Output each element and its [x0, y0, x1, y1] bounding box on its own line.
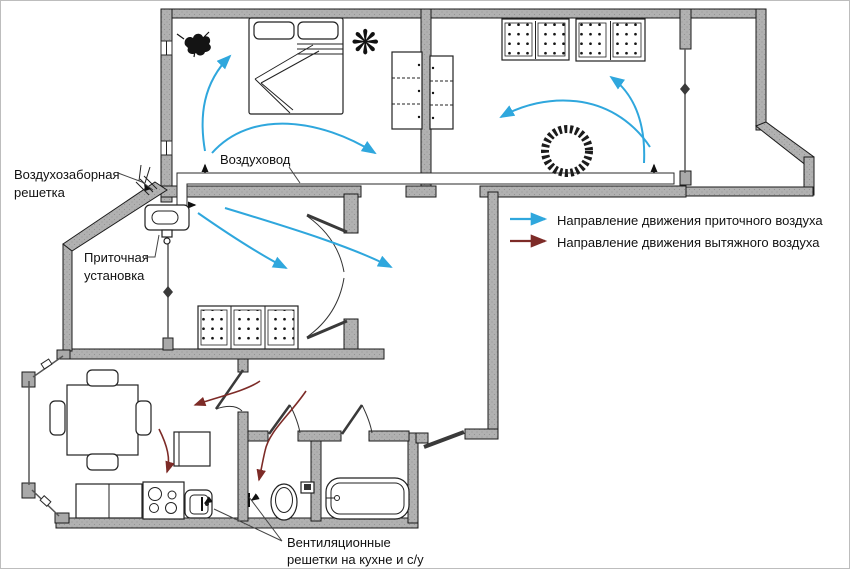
label-vent-grilles-line2: решетки на кухне и с/у — [287, 552, 424, 567]
label-air-duct: Воздуховод — [220, 152, 291, 167]
entrance-door-icon — [424, 432, 464, 447]
supply-arrow — [203, 56, 230, 151]
label-vent-grilles-line1: Вентиляционные — [287, 535, 391, 550]
bed — [249, 18, 343, 114]
supply-unit-icon — [145, 205, 189, 244]
label-air-intake-grille-line1: Воздухозаборная — [14, 167, 120, 182]
toilet — [271, 482, 314, 520]
legend-exhaust-label: Направление движения вытяжного воздуха — [557, 235, 820, 250]
kitchen-counter — [76, 484, 142, 518]
floor-plan-svg: ❋ — [1, 1, 850, 569]
bathroom-door-icon — [342, 405, 372, 434]
bathtub — [326, 478, 409, 519]
fridge — [174, 432, 210, 466]
legend: Направление движения приточного воздуха … — [510, 213, 823, 250]
label-supply-unit-line1: Приточная — [84, 250, 149, 265]
supply-arrow — [212, 124, 375, 153]
living-room-radiator — [198, 306, 298, 349]
kitchen-sink — [185, 490, 212, 518]
supply-arrow — [198, 213, 286, 268]
label-air-intake-grille-line2: решетка — [14, 185, 66, 200]
window-curtain-radiator-1 — [502, 19, 569, 60]
legend-supply-label: Направление движения приточного воздуха — [557, 213, 823, 228]
dark-plant-icon — [177, 32, 211, 57]
window-curtain-radiator-2 — [576, 19, 645, 61]
exhaust-arrow — [159, 429, 169, 472]
living-room-double-door-icon — [307, 215, 347, 338]
toilet-door-icon — [269, 405, 300, 434]
ventilation-floor-plan: ❋ — [0, 0, 850, 569]
loggia-window-icon — [680, 49, 690, 173]
living-room-window-icon — [163, 244, 173, 338]
dining-table — [50, 370, 151, 470]
wreath-plant-icon — [545, 129, 589, 173]
stove — [143, 482, 184, 519]
flower-plant-icon: ❋ — [351, 23, 380, 63]
supply-arrow — [611, 77, 644, 163]
label-supply-unit-line2: установка — [84, 268, 145, 283]
wardrobe — [392, 52, 453, 129]
toilet-vent-grille-icon — [249, 493, 258, 507]
supply-arrow — [501, 100, 650, 147]
